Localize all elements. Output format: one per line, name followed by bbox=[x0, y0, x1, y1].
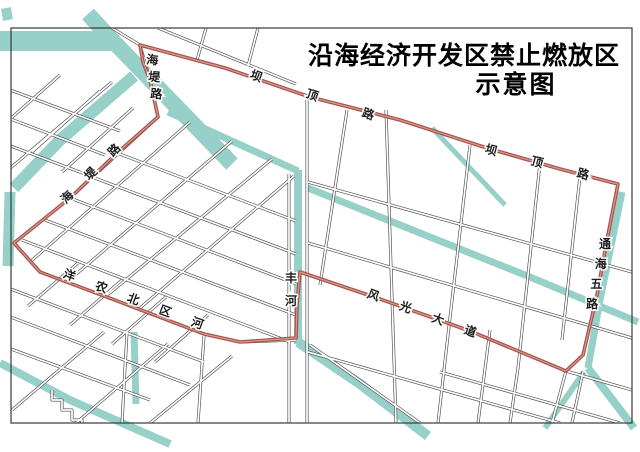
road-label-haidi-north-char: 路 bbox=[150, 86, 164, 102]
west-edge-canal bbox=[8, 192, 10, 266]
road-label-fengguang-avenue-char: 光 bbox=[397, 297, 414, 316]
road-label-tonghai-wulu-char: 通 bbox=[599, 236, 611, 251]
grid-road bbox=[92, 177, 296, 254]
grid-road bbox=[12, 332, 104, 410]
road-label-tonghai-wulu-char: 路 bbox=[586, 296, 599, 311]
map-title-line1: 沿海经济开发区禁止燃放区 bbox=[294, 42, 634, 71]
road-label-haidi-south-char: 路 bbox=[104, 140, 124, 160]
grid-road bbox=[0, 142, 85, 174]
map-title: 沿海经济开发区禁止燃放区 示意图 bbox=[294, 42, 634, 100]
grid-road bbox=[62, 108, 133, 172]
road-label-haidi-north-char: 海 bbox=[146, 52, 159, 68]
road-label-tonghai-wulu-char: 五 bbox=[590, 277, 602, 291]
road-label-fengguang-avenue-char: 大 bbox=[430, 310, 446, 328]
grid-road bbox=[310, 345, 420, 423]
top-left-pond bbox=[6, 8, 8, 20]
map-title-line2: 示意图 bbox=[294, 71, 634, 100]
grid-road bbox=[140, 176, 294, 308]
road-label-fengguang-avenue-char: 风 bbox=[365, 287, 381, 304]
map-image: 坝顶路坝顶路通海五路风光大道洋农北区河丰河海堤路海堤路 沿海经济开发区禁止燃放区… bbox=[0, 0, 640, 452]
grid-road bbox=[308, 352, 560, 423]
road-label-fengguang-avenue-char: 道 bbox=[462, 322, 478, 340]
river-label-fenghe-char: 河 bbox=[284, 293, 297, 308]
road-label-badinglu-east-char: 顶 bbox=[529, 154, 544, 171]
grid-road bbox=[478, 330, 490, 423]
grid-road bbox=[0, 75, 60, 128]
grid-road bbox=[248, 28, 258, 66]
road-label-badinglu-east-char: 坝 bbox=[483, 142, 498, 159]
river-label-fenghe-char: 丰 bbox=[285, 270, 297, 285]
road-label-haidi-south-char: 海 bbox=[57, 187, 76, 206]
road-label-tonghai-wulu-char: 海 bbox=[595, 256, 607, 271]
grid-road bbox=[150, 356, 232, 423]
grid-road bbox=[122, 332, 127, 423]
road-label-badinglu-east-char: 路 bbox=[575, 165, 591, 183]
road-label-haidi-north-char: 堤 bbox=[148, 69, 162, 85]
